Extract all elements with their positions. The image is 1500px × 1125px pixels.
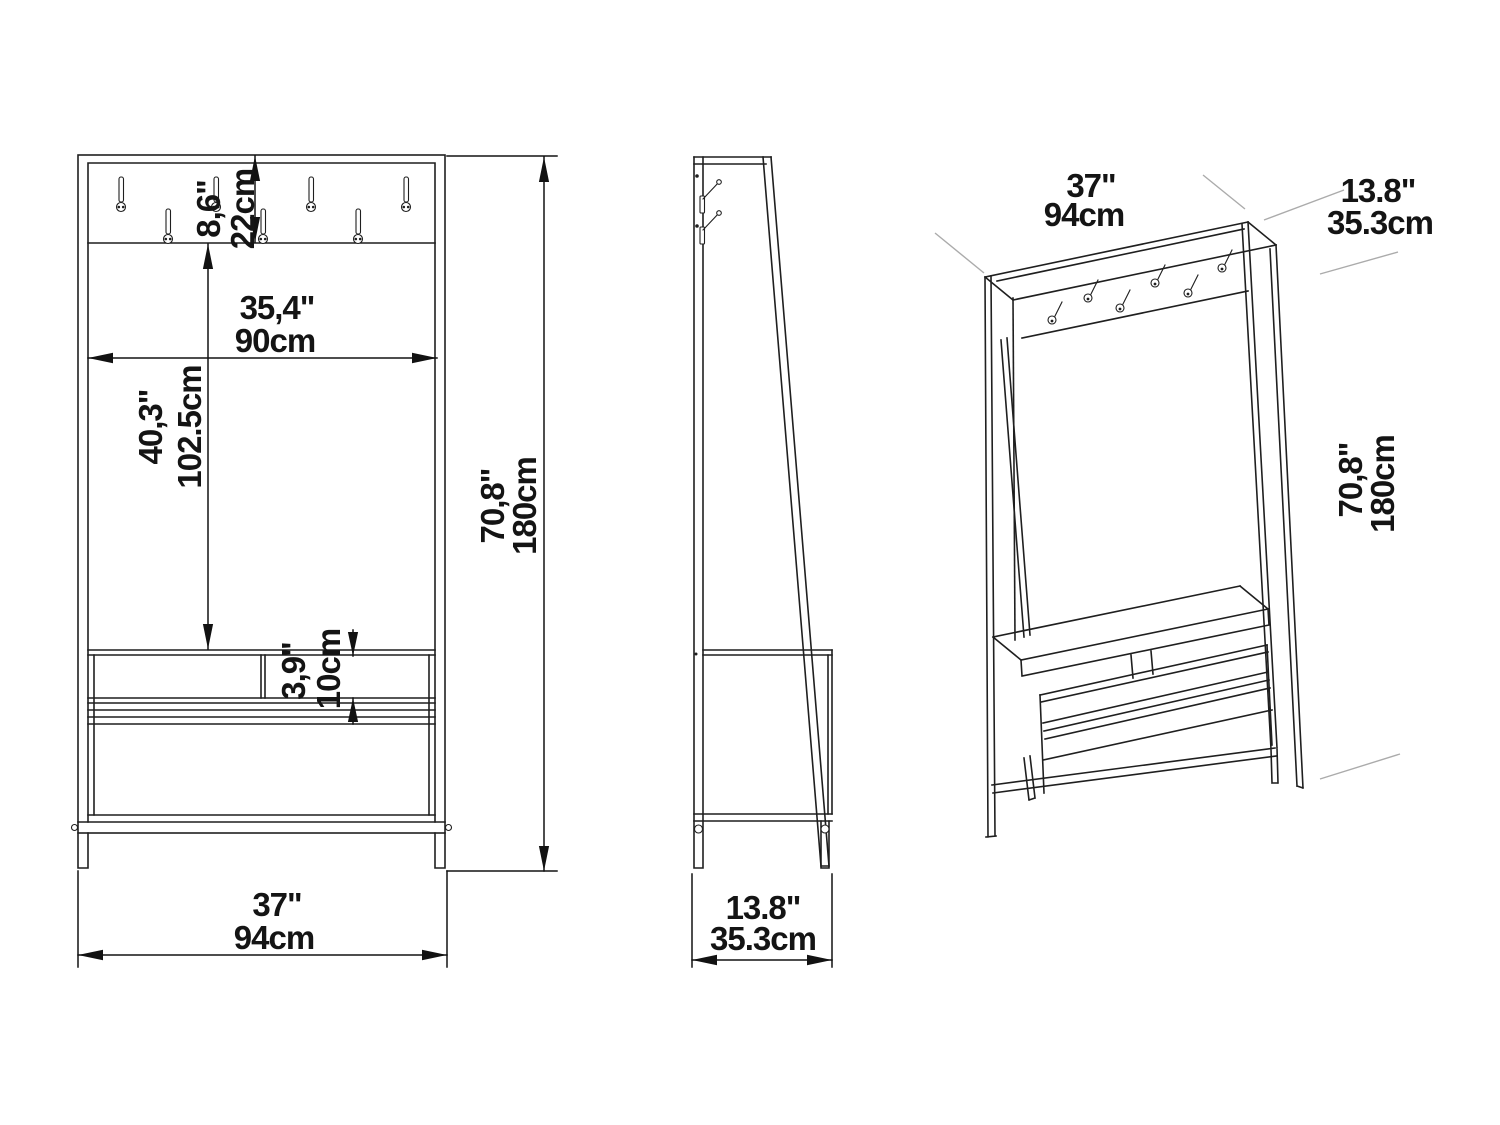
dim-label-metric: 102.5cm — [171, 365, 208, 488]
coat-hook-icon — [164, 209, 173, 244]
dim-label-metric: 90cm — [235, 322, 315, 359]
dim-label-inches: 35,4" — [240, 289, 315, 326]
leader-line — [1320, 754, 1400, 779]
side-bottom-frame — [694, 814, 832, 821]
iso-dim-overall-depth: 13.8" 35.3cm — [1327, 172, 1433, 241]
leader-line — [1320, 252, 1398, 274]
side-outline — [694, 157, 832, 868]
dim-label-metric: 94cm — [234, 919, 314, 956]
dim-label-metric: 10cm — [310, 629, 347, 709]
bench-shelf — [88, 698, 435, 703]
iso-left-post — [985, 276, 996, 837]
iso-top-cap — [985, 222, 1276, 300]
side-rear-edge — [828, 650, 832, 814]
front-outline — [72, 155, 452, 868]
front-inner-frame — [88, 163, 435, 822]
dim-overall-width: 37" 94cm — [78, 871, 447, 967]
iso-frame — [985, 222, 1303, 837]
foot-glide-icon — [72, 825, 78, 831]
iso-box-sides — [1040, 645, 1272, 793]
dim-label-inches: 40,3" — [132, 390, 169, 465]
dim-inner-width: 35,4" 90cm — [88, 289, 437, 363]
dim-label-inches: 3,9" — [275, 642, 312, 700]
coat-hook-icon — [402, 177, 411, 212]
foot-glide-icon — [821, 825, 829, 833]
coat-hook-icon — [1184, 275, 1198, 297]
side-back-panel — [694, 157, 703, 868]
screw-dot-icon — [695, 224, 699, 228]
leader-line — [1203, 175, 1245, 209]
front-frame — [78, 155, 445, 833]
screw-dot-icon — [695, 174, 699, 178]
side-bench-top — [703, 650, 832, 655]
coat-hook-icon — [307, 177, 316, 212]
iso-bench-top — [993, 586, 1268, 660]
dim-label-metric: 180cm — [1364, 435, 1401, 533]
screw-dot-icon — [695, 653, 698, 656]
iso-left-post-back — [1013, 298, 1015, 640]
iso-view: 37" 94cm 13.8" 35.3cm 70,8" 180cm — [935, 167, 1433, 837]
side-view: 13.8" 35.3cm — [692, 157, 832, 967]
iso-dim-overall-width: 37" 94cm — [1044, 167, 1124, 233]
iso-front-slats — [1043, 672, 1270, 739]
dim-board-to-bench: 40,3" 102.5cm — [132, 244, 213, 649]
dim-label-inches: 37" — [252, 886, 301, 923]
iso-leader-lines — [935, 175, 1400, 779]
dim-overall-depth: 13.8" 35.3cm — [692, 874, 832, 967]
dim-label-metric: 35.3cm — [710, 920, 816, 957]
foot-glide-icon — [446, 825, 452, 831]
foot-glide-icon — [695, 825, 703, 833]
iso-shelf — [1040, 645, 1268, 702]
dim-label-metric: 22cm — [224, 169, 261, 249]
iso-bench — [992, 586, 1276, 793]
front-slats — [88, 710, 435, 724]
side-slanted-leg — [763, 157, 829, 866]
dim-overall-height: 70,8" 180cm — [447, 156, 557, 871]
coat-hook-icon — [1151, 265, 1165, 287]
iso-bottom-rail — [992, 748, 1276, 793]
leader-line — [935, 233, 984, 273]
iso-bench-apron — [1021, 609, 1269, 676]
dim-label-metric: 35.3cm — [1327, 204, 1433, 241]
iso-dim-overall-height: 70,8" 180cm — [1332, 435, 1401, 533]
dim-label-metric: 94cm — [1044, 196, 1124, 233]
dim-hook-board-height: 8,6" 22cm — [190, 156, 261, 249]
coat-hook-icon — [1116, 290, 1130, 312]
coat-hook-icon — [117, 177, 126, 212]
iso-back-left-leg — [1001, 338, 1035, 800]
front-coat-hooks — [117, 177, 411, 244]
dim-label-metric: 180cm — [506, 457, 543, 555]
dimension-drawing: 8,6" 22cm 35,4" 90cm 40,3" 102.5cm 3,9" … — [0, 0, 1500, 1125]
drawing-canvas: 8,6" 22cm 35,4" 90cm 40,3" 102.5cm 3,9" … — [0, 0, 1500, 1125]
shelf-divider — [261, 655, 265, 698]
front-feet — [78, 833, 445, 868]
dim-label-inches: 8,6" — [190, 180, 227, 238]
coat-hook-icon — [354, 209, 363, 244]
front-view: 8,6" 22cm 35,4" 90cm 40,3" 102.5cm 3,9" … — [72, 155, 558, 967]
side-top-cap — [694, 157, 771, 164]
coat-hook-icon — [1048, 302, 1062, 324]
coat-hook-icon — [1218, 250, 1232, 272]
